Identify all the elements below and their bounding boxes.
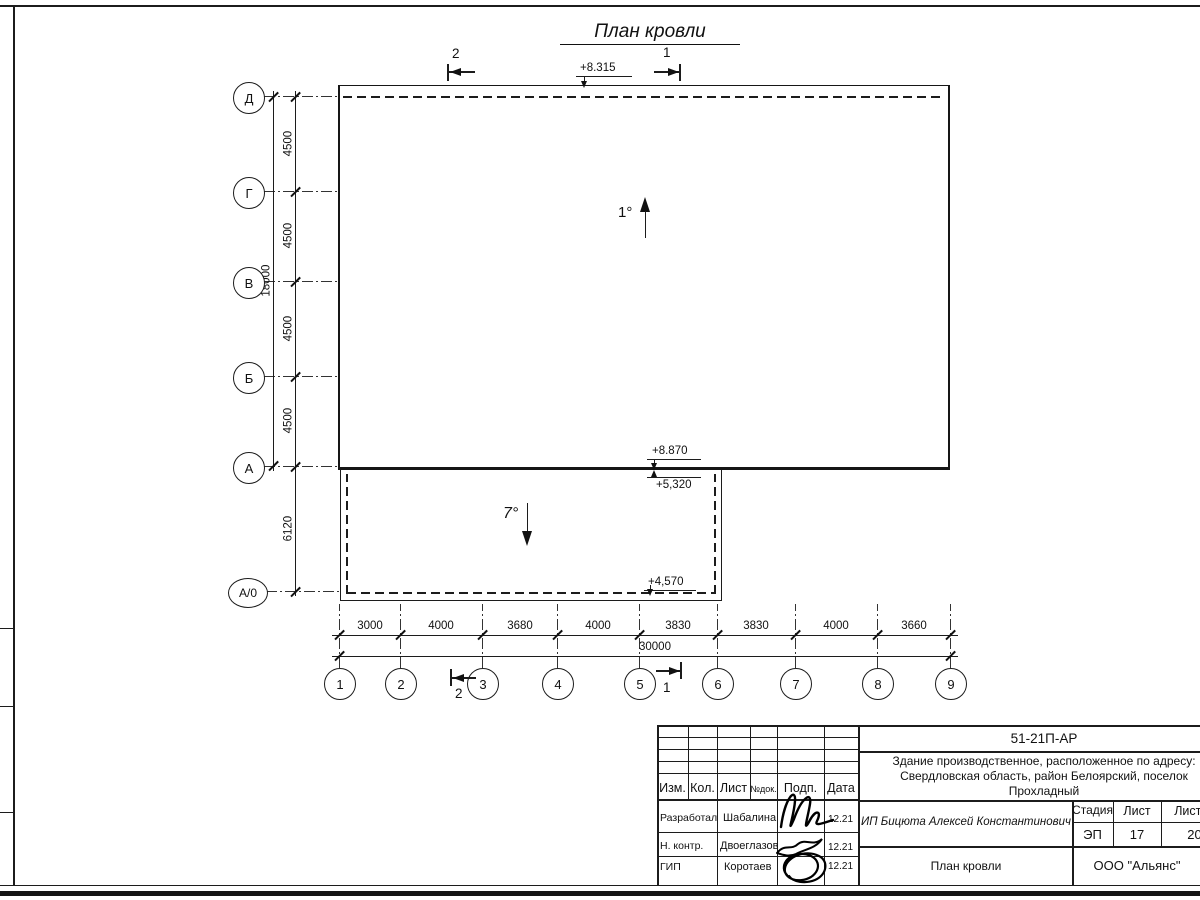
axis-bubble-row-b: Б bbox=[233, 362, 265, 394]
axis-label: Г bbox=[245, 186, 252, 201]
stage-value: ЭП bbox=[1072, 828, 1113, 843]
elevation-roof-top-label: +8.315 bbox=[580, 62, 616, 75]
axis-line-v bbox=[264, 281, 340, 282]
elevation-annex-low-label: +4,570 bbox=[648, 576, 684, 589]
dim-label-row-1: 4500 bbox=[282, 114, 295, 174]
axis-label: Д bbox=[245, 91, 254, 106]
axis-label: 7 bbox=[792, 677, 799, 692]
dim-label-col-6: 3830 bbox=[726, 620, 786, 633]
axis-bubble-col-2: 2 bbox=[385, 668, 417, 700]
section-mark-1-bottom-bar bbox=[680, 662, 682, 679]
sheets-value: 20 bbox=[1161, 828, 1200, 843]
axis-label: А/0 bbox=[239, 586, 257, 600]
dim-label-row-4: 4500 bbox=[282, 391, 295, 451]
axis-bubble-row-a: А bbox=[233, 452, 265, 484]
dim-label-row-2: 4500 bbox=[282, 206, 295, 266]
axis-label: 9 bbox=[947, 677, 954, 692]
frame-margin-tick-1 bbox=[0, 628, 13, 629]
axis-bubble-col-9: 9 bbox=[935, 668, 967, 700]
axis-bubble-col-5: 5 bbox=[624, 668, 656, 700]
titleblock-line bbox=[858, 800, 1200, 802]
axis-bubble-col-4: 4 bbox=[542, 668, 574, 700]
frame-left-line bbox=[13, 5, 15, 886]
dim-label-row-5: 6120 bbox=[282, 499, 295, 559]
axis-bubble-col-3: 3 bbox=[467, 668, 499, 700]
axis-line-d bbox=[264, 96, 340, 97]
slope-annex-arrowhead bbox=[522, 531, 532, 546]
titleblock-line bbox=[1072, 822, 1200, 823]
dim-label-col-1: 3000 bbox=[340, 620, 400, 633]
slope-main-arrowhead bbox=[640, 197, 650, 212]
dim-label-col-8: 3660 bbox=[884, 620, 944, 633]
client-name: ИП Бицюта Алексей Константинович bbox=[860, 816, 1072, 829]
dim-label-col-5: 3830 bbox=[648, 620, 708, 633]
stamp-role-developer: Разработал bbox=[660, 812, 717, 824]
elevation-annex-low-arrowhead bbox=[647, 589, 653, 596]
axis-bubble-col-7: 7 bbox=[780, 668, 812, 700]
drawing-sheet: План кровли 18000 4500 4500 4500 4500 61… bbox=[0, 0, 1200, 900]
titleblock-line bbox=[657, 725, 1200, 727]
roof-main-outline bbox=[338, 85, 950, 470]
axis-label: В bbox=[245, 276, 254, 291]
axis-line-b bbox=[264, 376, 340, 377]
doc-number: 51-21П-АР bbox=[860, 731, 1200, 747]
elevation-annex-high-arrowhead bbox=[651, 470, 657, 477]
axis-bubble-row-a0: А/0 bbox=[228, 578, 268, 608]
dim-label-col-4: 4000 bbox=[568, 620, 628, 633]
axis-bubble-row-v: В bbox=[233, 267, 265, 299]
project-description-line3: Прохладный bbox=[860, 785, 1200, 799]
dim-line-cols-segments bbox=[332, 635, 958, 636]
stamp-header-izm: Изм. bbox=[657, 781, 688, 795]
titleblock-line bbox=[858, 751, 1200, 753]
section-mark-2-top-arrowhead bbox=[450, 68, 461, 76]
frame-bottom-line bbox=[0, 885, 1200, 886]
slope-annex-label: 7° bbox=[503, 505, 518, 523]
dim-label-col-total: 30000 bbox=[620, 641, 690, 654]
axis-label: 8 bbox=[874, 677, 881, 692]
frame-margin-tick-2 bbox=[0, 706, 13, 707]
frame-top-line bbox=[0, 5, 1200, 7]
sheet-edge-bottom bbox=[0, 891, 1200, 896]
axis-label: 5 bbox=[636, 677, 643, 692]
axis-bubble-col-8: 8 bbox=[862, 668, 894, 700]
axis-bubble-row-g: Г bbox=[233, 177, 265, 209]
slope-main-label: 1° bbox=[618, 204, 632, 221]
stamp-role-gip: ГИП bbox=[660, 861, 681, 873]
section-mark-2-bottom-arrowhead bbox=[453, 674, 464, 682]
axis-line-g bbox=[264, 191, 340, 192]
axis-label: Б bbox=[245, 371, 254, 386]
dim-label-col-3: 3680 bbox=[490, 620, 550, 633]
stage-label: Стадия bbox=[1072, 804, 1113, 818]
stamp-header-kol: Кол. bbox=[688, 781, 717, 795]
annex-wall-dashed-right bbox=[714, 474, 716, 594]
axis-bubble-col-6: 6 bbox=[702, 668, 734, 700]
elevation-annex-high-label: +5,320 bbox=[656, 479, 692, 492]
section-mark-1-top-bar bbox=[679, 64, 681, 81]
elevation-roof-main-label: +8.870 bbox=[652, 445, 688, 458]
titleblock-line bbox=[858, 846, 1200, 848]
axis-line-a bbox=[264, 466, 340, 467]
sheets-label: Листов bbox=[1161, 804, 1200, 818]
axis-label: 1 bbox=[336, 677, 343, 692]
slope-annex-arrow-line bbox=[527, 503, 528, 532]
axis-line-a0 bbox=[266, 591, 340, 592]
sheet-label: Лист bbox=[1113, 804, 1161, 818]
dim-line-cols-total bbox=[332, 656, 958, 657]
annex-wall-dashed-bottom bbox=[347, 592, 715, 594]
axis-label: 4 bbox=[554, 677, 561, 692]
section-mark-1-bottom-label: 1 bbox=[663, 680, 671, 696]
section-mark-1-top-arrowhead bbox=[668, 68, 679, 76]
elevation-roof-main-arrowhead bbox=[651, 463, 657, 470]
project-description-line1: Здание производственное, расположенное п… bbox=[860, 755, 1200, 769]
dim-label-row-3: 4500 bbox=[282, 299, 295, 359]
stamp-header-list: Лист bbox=[717, 781, 750, 795]
section-mark-2-bottom-label: 2 bbox=[455, 686, 463, 702]
company-name: ООО "Альянс" bbox=[1074, 859, 1200, 874]
sheet-title: План кровли bbox=[860, 860, 1072, 874]
signature-scribbles bbox=[765, 783, 865, 888]
section-mark-1-top-label: 1 bbox=[663, 45, 671, 61]
annex-wall-dashed-left bbox=[346, 474, 348, 594]
axis-label: 6 bbox=[714, 677, 721, 692]
section-mark-1-bottom-arrowhead bbox=[669, 667, 680, 675]
axis-bubble-col-1: 1 bbox=[324, 668, 356, 700]
section-mark-2-top-label: 2 bbox=[452, 46, 460, 62]
sheet-value: 17 bbox=[1113, 828, 1161, 843]
axis-label: А bbox=[245, 461, 254, 476]
page-title: План кровли bbox=[560, 21, 740, 45]
axis-label: 3 bbox=[479, 677, 486, 692]
axis-bubble-row-d: Д bbox=[233, 82, 265, 114]
dim-label-col-7: 4000 bbox=[806, 620, 866, 633]
titleblock-line bbox=[657, 725, 659, 886]
project-description-line2: Свердловская область, район Белоярский, … bbox=[860, 770, 1200, 784]
titleblock-line bbox=[717, 725, 718, 886]
stamp-role-ncontrol: Н. контр. bbox=[660, 840, 703, 852]
elevation-annex-high-line bbox=[647, 477, 701, 478]
dim-label-col-2: 4000 bbox=[411, 620, 471, 633]
roof-main-parapet-dashed-line bbox=[343, 96, 945, 98]
axis-label: 2 bbox=[397, 677, 404, 692]
slope-main-arrow-line bbox=[645, 211, 646, 238]
elevation-roof-top-arrowhead bbox=[581, 81, 587, 88]
frame-margin-tick-3 bbox=[0, 812, 13, 813]
